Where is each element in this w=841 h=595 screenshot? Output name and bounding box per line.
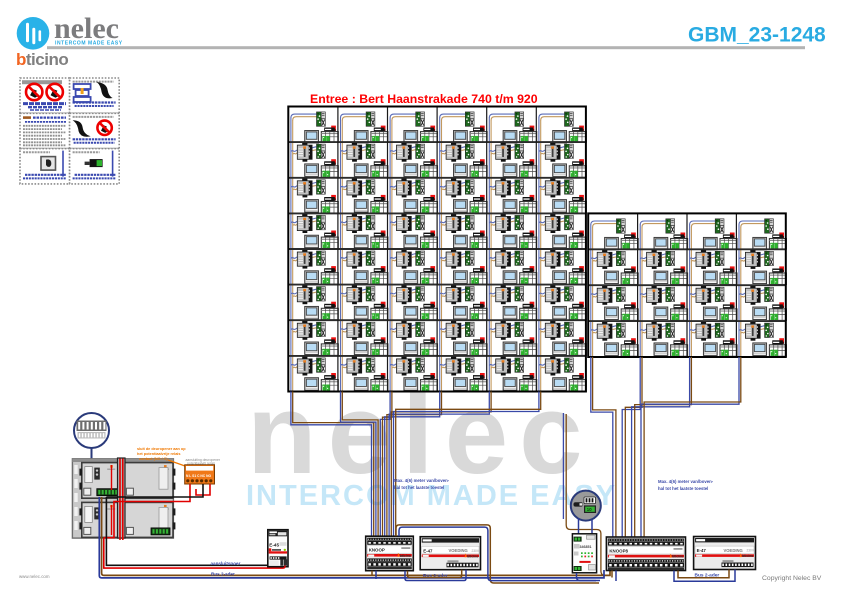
svg-text:hal tot het laatste toestel: hal tot het laatste toestel bbox=[394, 485, 444, 490]
svg-text:contact (NO / C): contact (NO / C) bbox=[139, 457, 168, 461]
svg-text:Max. 4(6) meter van/boven-: Max. 4(6) meter van/boven- bbox=[394, 478, 450, 483]
svg-text:INTERCOM MADE EASY: INTERCOM MADE EASY bbox=[55, 40, 123, 46]
svg-text:E-47: E-47 bbox=[697, 548, 707, 553]
svg-text:VOEDING: VOEDING bbox=[724, 548, 743, 553]
svg-text:10: 10 bbox=[587, 507, 593, 512]
svg-text:VOEDING: VOEDING bbox=[449, 548, 468, 553]
svg-text:sluit de deuropener aan op: sluit de deuropener aan op bbox=[137, 447, 186, 451]
svg-text:aansluitsnoer: aansluitsnoer bbox=[211, 561, 241, 566]
svg-text:230V: 230V bbox=[472, 549, 480, 553]
svg-text:KNOOP8: KNOOP8 bbox=[609, 548, 628, 553]
svg-text:het potentiaalvrije relais: het potentiaalvrije relais bbox=[137, 452, 180, 456]
svg-text:E-45: E-45 bbox=[269, 543, 279, 548]
svg-text:hal tot het laatste toestel: hal tot het laatste toestel bbox=[658, 486, 708, 491]
svg-text:bticino: bticino bbox=[16, 50, 68, 69]
svg-text:Copyright Nelec BV: Copyright Nelec BV bbox=[762, 575, 822, 582]
svg-text:230V: 230V bbox=[747, 549, 755, 553]
svg-text:Max. 4(6) meter van/boven-: Max. 4(6) meter van/boven- bbox=[658, 479, 714, 484]
svg-text:bticino: bticino bbox=[672, 555, 683, 559]
svg-text:Bus 2-ader: Bus 2-ader bbox=[211, 571, 235, 576]
svg-text:E-47: E-47 bbox=[423, 548, 433, 553]
svg-text:www.nelec.com: www.nelec.com bbox=[19, 574, 50, 579]
svg-text:bticino: bticino bbox=[400, 554, 411, 558]
svg-text:KNOOP: KNOOP bbox=[369, 548, 385, 553]
svg-text:bticino: bticino bbox=[467, 554, 478, 558]
svg-text:N L S1 C NC NO: N L S1 C NC NO bbox=[186, 474, 211, 478]
svg-text:bticino: bticino bbox=[742, 554, 753, 558]
svg-text:346851: 346851 bbox=[580, 545, 592, 549]
svg-text:GBM_23-1248: GBM_23-1248 bbox=[688, 24, 826, 47]
svg-text:Entree : Bert Haanstrakade 740: Entree : Bert Haanstrakade 740 t/m 920 bbox=[310, 92, 538, 106]
